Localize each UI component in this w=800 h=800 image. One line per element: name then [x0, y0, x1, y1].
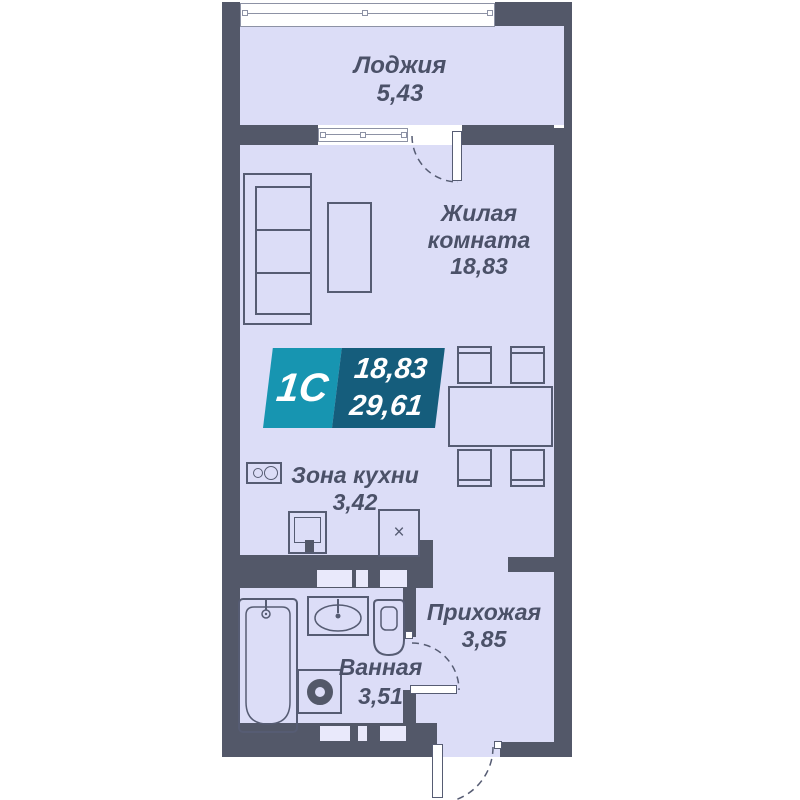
window-marker — [362, 10, 368, 16]
room-label-living: Жилая комната — [409, 200, 549, 254]
apartment-type-label: 1С — [263, 348, 342, 428]
chair-icon — [510, 346, 545, 384]
door-leaf-balcony — [452, 131, 462, 181]
room-area-living: 18,83 — [409, 253, 549, 280]
room-area-bathroom: 3,51 — [333, 683, 428, 710]
wall-segment — [222, 2, 240, 757]
wall-segment — [508, 557, 554, 572]
wall-segment — [500, 742, 572, 757]
wall-segment — [554, 128, 572, 757]
sofa-seat-divider — [257, 272, 310, 274]
vent-block — [317, 570, 352, 587]
kitchen-sink-icon — [288, 511, 327, 554]
room-label-kitchen: Зона кухни — [285, 462, 425, 489]
appliance-marker: × — [378, 509, 420, 557]
window — [240, 3, 495, 27]
sofa-seat — [255, 186, 312, 315]
floor-plan: × Лоджия 5,43 Жилая — [0, 0, 800, 800]
window — [318, 128, 408, 142]
vent-block — [358, 726, 367, 741]
window-marker — [320, 132, 326, 138]
wall-segment — [462, 125, 554, 145]
vent-block — [380, 570, 407, 587]
room-label-hallway: Прихожая — [414, 599, 554, 626]
room-label-loggia: Лоджия — [320, 52, 480, 79]
wall-segment — [564, 2, 572, 128]
door-strike-plate — [494, 741, 502, 749]
apartment-areas: 18,83 29,61 — [332, 348, 445, 428]
badge-living-area: 18,83 — [337, 351, 445, 388]
cabinet-icon — [327, 202, 372, 293]
chair-icon — [510, 449, 545, 487]
room-label-bathroom: Ванная — [333, 654, 428, 681]
wall-segment — [495, 2, 572, 26]
room-area-loggia: 5,43 — [320, 80, 480, 107]
vent-block — [356, 570, 368, 587]
faucet-icon — [305, 540, 314, 552]
door-strike-plate — [405, 631, 413, 639]
burner-icon — [264, 466, 278, 480]
room-area-kitchen: 3,42 — [285, 489, 425, 516]
badge-total-area: 29,61 — [332, 388, 440, 425]
apartment-badge: 1С 18,83 29,61 — [263, 348, 445, 428]
window-marker — [401, 132, 407, 138]
chair-icon — [457, 346, 492, 384]
room-fill-entrance-gap — [437, 742, 500, 757]
vent-block — [320, 726, 350, 741]
sofa-seat-divider — [257, 229, 310, 231]
appliance-mark-label: × — [393, 522, 404, 544]
window-marker — [242, 10, 248, 16]
window-marker — [360, 132, 366, 138]
dining-table-icon — [448, 386, 553, 447]
door-leaf-entrance — [432, 744, 443, 798]
chair-icon — [457, 449, 492, 487]
wall-segment — [240, 125, 318, 145]
room-area-hallway: 3,85 — [414, 626, 554, 653]
vent-block — [380, 726, 406, 741]
washing-machine-drum-icon — [307, 679, 333, 705]
window-marker — [487, 10, 493, 16]
wall-segment — [420, 540, 433, 555]
burner-icon — [253, 468, 263, 478]
stove-icon — [246, 462, 282, 484]
